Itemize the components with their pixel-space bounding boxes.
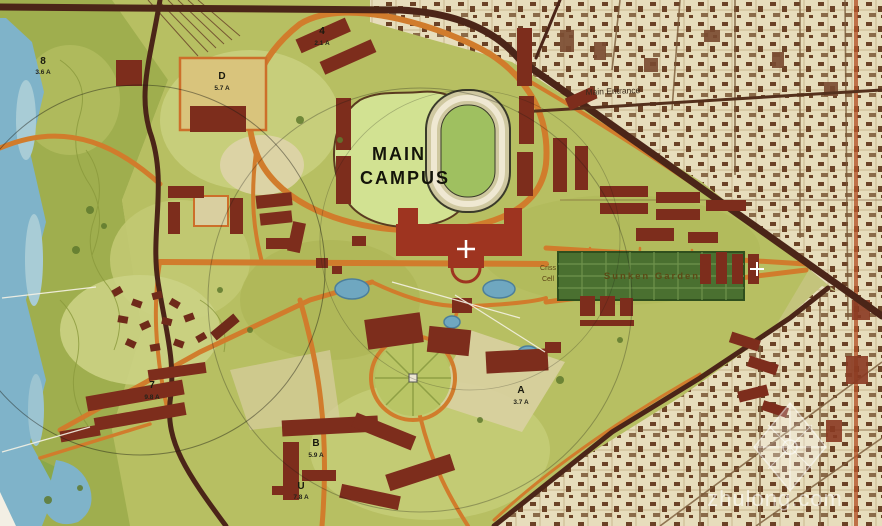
sunken-garden-label: Sunken Garden — [604, 271, 700, 282]
zone-area-7: 9.8 A — [144, 394, 160, 401]
zone-area-a: 3.7 A — [513, 399, 529, 406]
stadium — [426, 90, 510, 212]
main-campus-title-line1: MAIN — [372, 144, 426, 164]
criss-cell-label-line2: Cell — [542, 276, 555, 283]
zone-area-u: 7.8 A — [293, 494, 309, 501]
campus-plan-photo: MAIN CAMPUS Main Entrance Sunken Garden … — [0, 0, 882, 526]
criss-cell-label-line1: Criss — [540, 265, 556, 272]
zone-area-d: 5.7 A — [214, 85, 230, 92]
zone-label-a: A — [517, 385, 524, 396]
campus-master-plan-map: MAIN CAMPUS Main Entrance Sunken Garden … — [0, 0, 882, 526]
zone-area-8: 3.6 A — [35, 69, 51, 76]
watermark-text: zhulong.com — [707, 486, 843, 511]
zone-label-u: U — [297, 481, 304, 492]
zone-label-b: B — [312, 438, 319, 449]
zone-label-d: D — [218, 71, 225, 82]
pond-west — [335, 279, 369, 299]
main-campus-title-line2: CAMPUS — [360, 168, 450, 188]
pond-central — [483, 280, 515, 298]
pond-small — [444, 316, 460, 328]
zone-area-4: 2.1 A — [314, 40, 330, 47]
zone-label-4: 4 — [319, 26, 325, 37]
zone-area-b: 5.9 A — [308, 452, 324, 459]
zone-label-7: 7 — [149, 380, 155, 391]
main-entrance-label: Main Entrance — [585, 85, 640, 97]
zone-label-8: 8 — [40, 56, 46, 67]
